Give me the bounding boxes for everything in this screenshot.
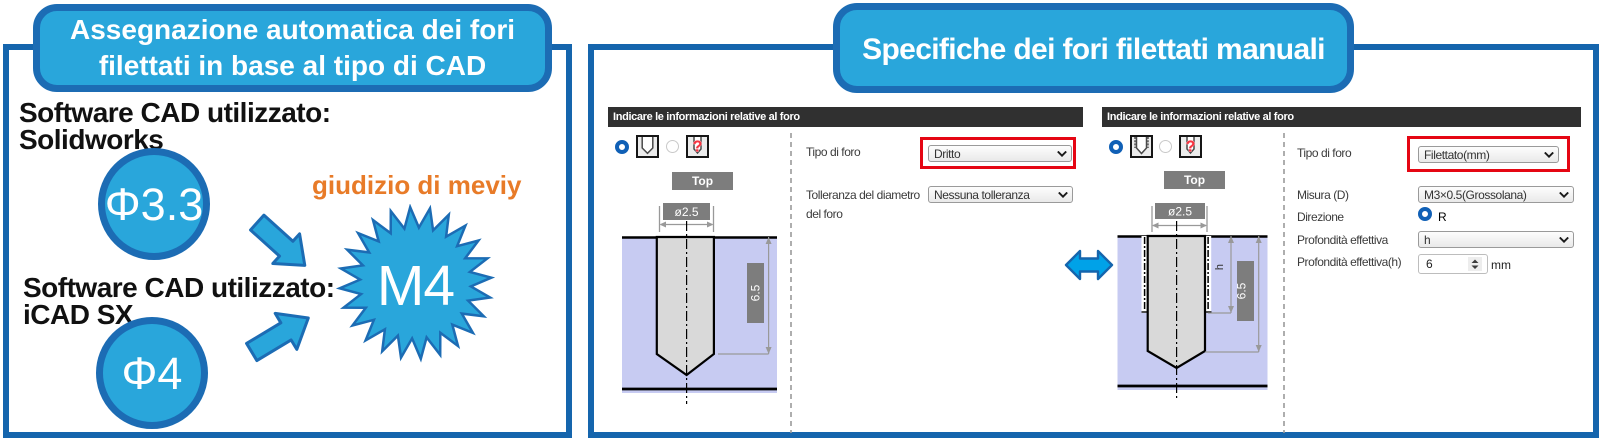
svg-text:h: h: [1214, 264, 1226, 270]
svg-text:6.5: 6.5: [1235, 282, 1249, 299]
svg-text:M4: M4: [377, 254, 454, 318]
svg-text:Φ3.3: Φ3.3: [105, 179, 203, 230]
svg-text:ø2.5: ø2.5: [674, 205, 698, 219]
svg-text:6.5: 6.5: [749, 284, 763, 301]
svg-text:Φ4: Φ4: [122, 348, 183, 399]
svg-text:ø2.5: ø2.5: [1168, 205, 1192, 219]
svg-text:?: ?: [693, 139, 703, 156]
svg-text:?: ?: [1186, 139, 1196, 156]
